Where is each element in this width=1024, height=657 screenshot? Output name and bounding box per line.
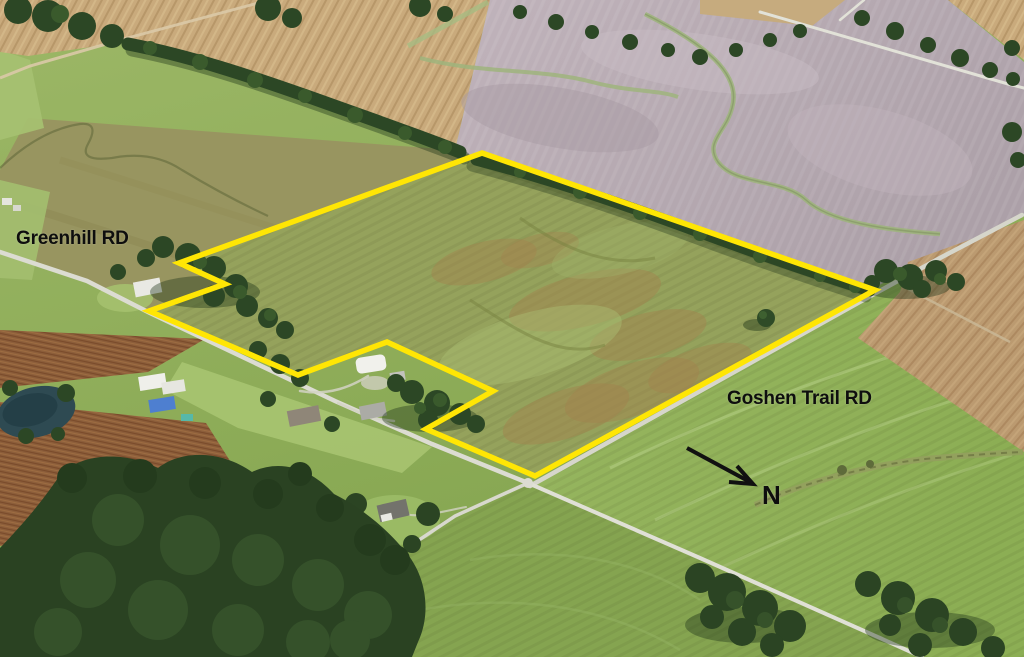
road-label-greenhill: Greenhill RD	[16, 228, 129, 250]
shed-left-2	[13, 205, 21, 211]
shed-left-1	[2, 198, 12, 205]
canopy-teal	[181, 414, 193, 421]
north-label: N	[762, 480, 781, 511]
aerial-scene	[0, 0, 1024, 657]
aerial-photo: Greenhill RD Goshen Trail RD N	[0, 0, 1024, 657]
lone-tree	[757, 309, 775, 327]
road-label-goshen-trail: Goshen Trail RD	[727, 388, 872, 410]
